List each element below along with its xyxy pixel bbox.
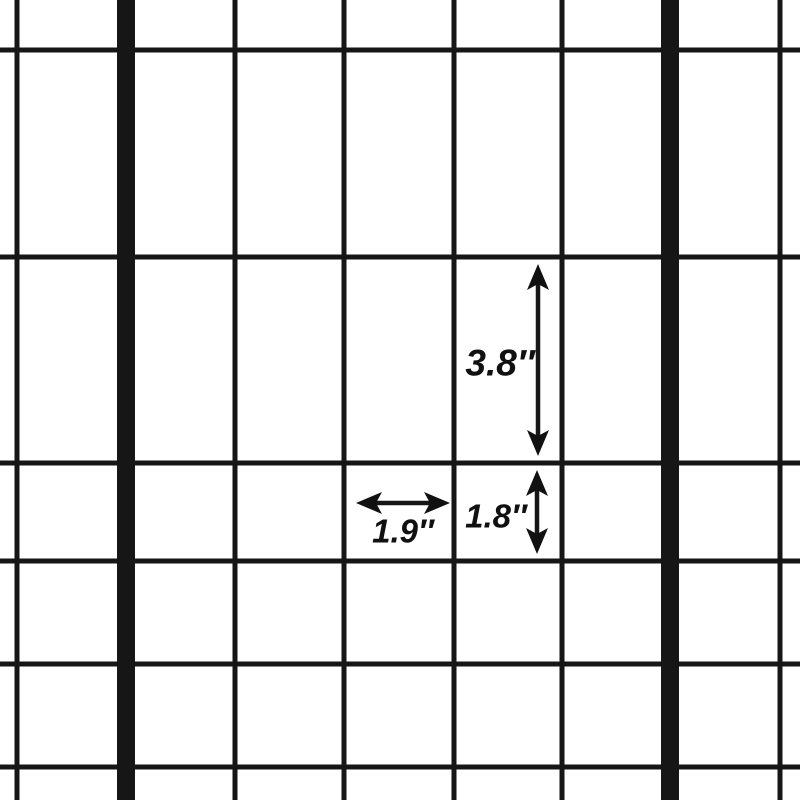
wire-mesh-diagram: 3.8″ 1.9″ 1.8″	[0, 0, 800, 800]
vertical-wire	[342, 0, 347, 800]
vertical-wire	[233, 0, 238, 800]
dimension-arrow-1.8-shaft	[535, 488, 540, 536]
mesh-grid	[0, 0, 800, 800]
horizontal-wire	[0, 255, 800, 260]
dimension-arrow-3.8-shaft	[536, 282, 541, 438]
horizontal-wire	[0, 461, 800, 466]
horizontal-wire	[0, 662, 800, 667]
vertical-wire	[560, 0, 565, 800]
dimension-label-3-8-inch: 3.8″	[465, 345, 534, 382]
horizontal-wire	[0, 765, 800, 770]
vertical-wire	[778, 0, 783, 800]
horizontal-wire	[0, 559, 800, 564]
dimension-arrow-1.9-shaft	[374, 501, 432, 506]
vertical-wire-thick	[117, 0, 135, 800]
vertical-wire	[452, 0, 457, 800]
vertical-wire	[15, 0, 20, 800]
horizontal-wire	[0, 48, 800, 53]
vertical-wire-thick	[661, 0, 679, 800]
dimension-label-1-8-inch: 1.8″	[465, 500, 527, 533]
dimension-label-1-9-inch: 1.9″	[372, 515, 434, 548]
